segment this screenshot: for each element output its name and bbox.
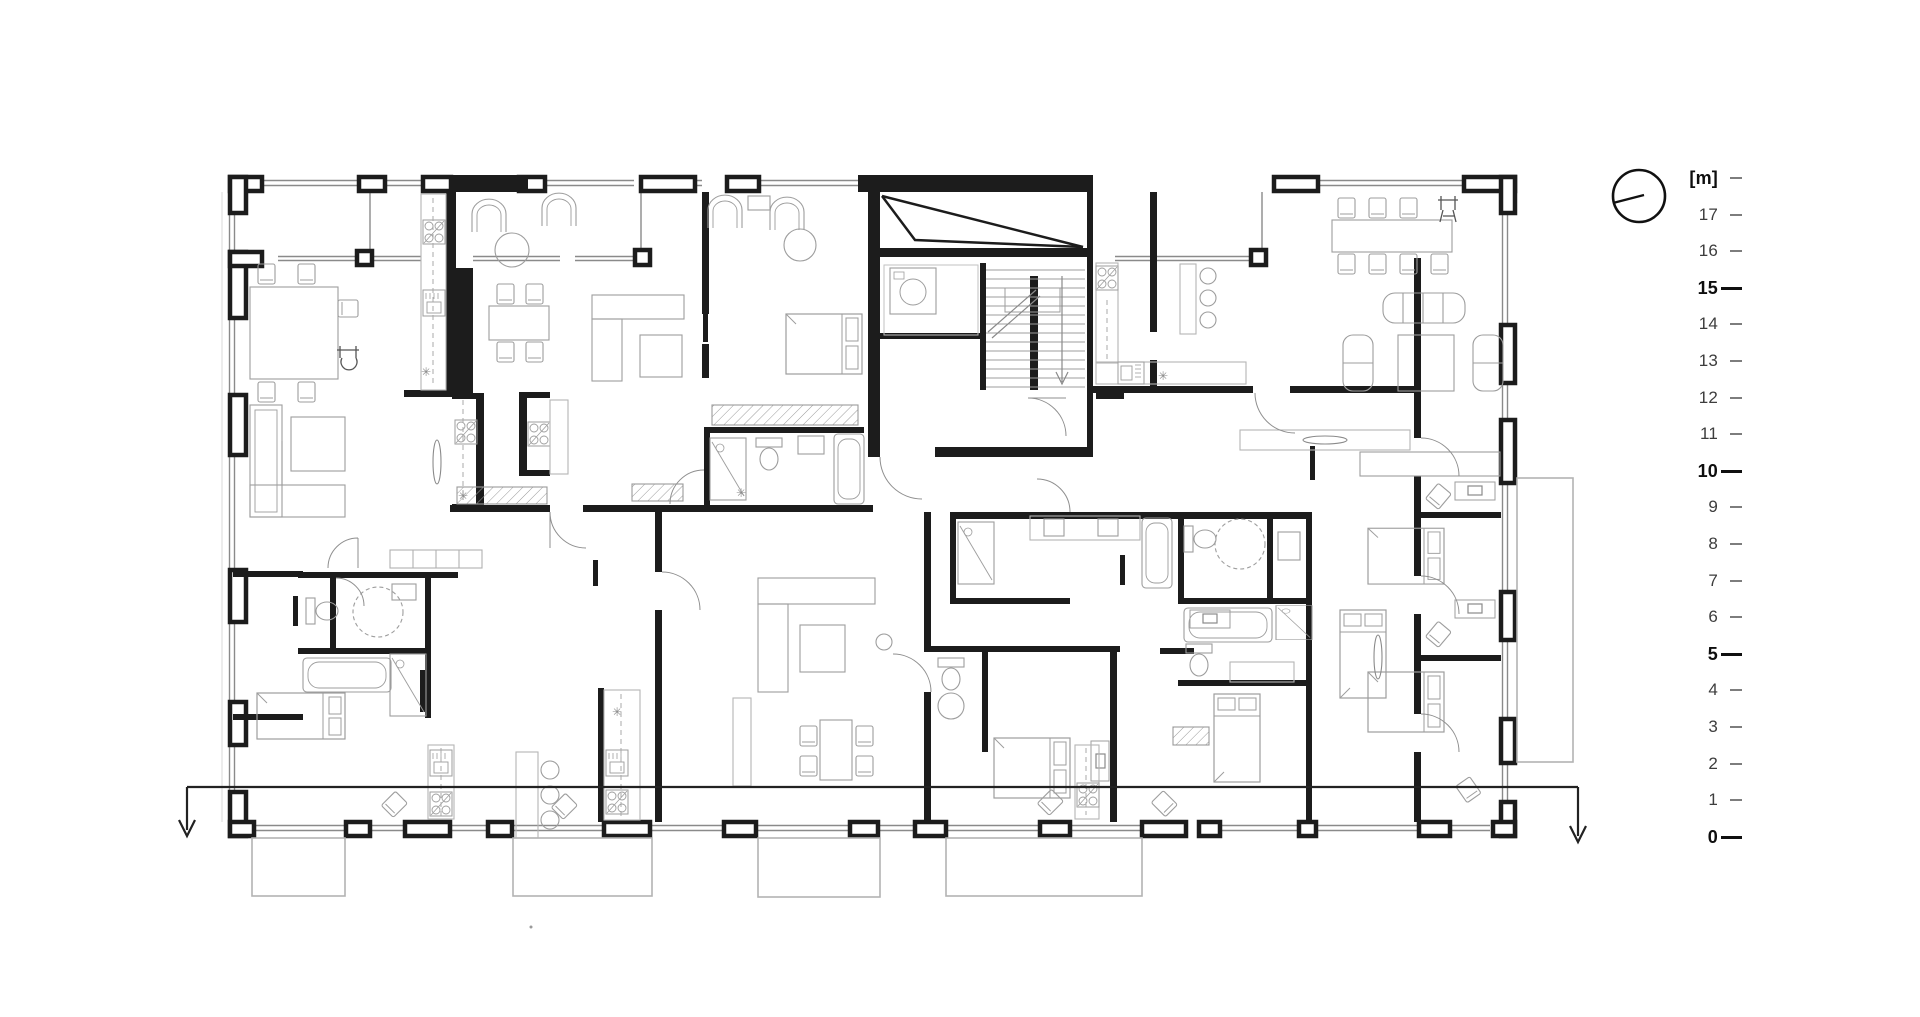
scale-tick-15: 15 <box>1640 275 1742 301</box>
scale-tick-mark-major <box>1721 287 1742 290</box>
scale-tick-2: 2 <box>1640 751 1742 777</box>
plant <box>433 440 441 484</box>
scale-tick-mark <box>1730 616 1742 618</box>
svg-text:✳: ✳ <box>1158 369 1168 383</box>
scale-tick-mark <box>1730 433 1742 435</box>
scale-tick-8: 8 <box>1640 531 1742 557</box>
interior-walls <box>233 192 1501 822</box>
scale-tick-mark <box>1730 799 1742 801</box>
scale-tick-3: 3 <box>1640 714 1742 740</box>
scale-tick-14: 14 <box>1640 311 1742 337</box>
stair-core <box>868 192 1093 457</box>
scale-tick-mark <box>1730 763 1742 765</box>
scale-tick-mark <box>1730 177 1742 179</box>
scale-tick-mark <box>1730 543 1742 545</box>
scale-tick-mark <box>1730 397 1742 399</box>
svg-text:✳: ✳ <box>736 486 746 500</box>
wheelchair-symbol <box>337 346 359 370</box>
scale-tick-mark-major <box>1721 653 1742 656</box>
scale-tick-1: 1 <box>1640 787 1742 813</box>
unit-3-bedroom <box>708 195 862 425</box>
unit-2-sofa <box>592 295 684 381</box>
scale-tick-17: 17 <box>1640 202 1742 228</box>
scale-tick-6: 6 <box>1640 604 1742 630</box>
scale-tick-mark <box>1730 580 1742 582</box>
scale-tick-mark-major <box>1721 836 1742 839</box>
unit-left-lower: ✳ <box>257 584 640 838</box>
scale-tick-5: 5 <box>1640 641 1742 667</box>
door-swings <box>328 393 1459 752</box>
scale-tick-10: 10 <box>1640 458 1742 484</box>
floor-plan-drawing: ✳ ✳ <box>0 0 1920 1017</box>
scale-tick-13: 13 <box>1640 348 1742 374</box>
architectural-floor-plan-sheet: ✳ ✳ <box>0 0 1920 1017</box>
scale-unit-row: [m] <box>1640 165 1742 191</box>
scale-tick-mark <box>1730 726 1742 728</box>
scale-tick-mark <box>1730 689 1742 691</box>
svg-text:✳: ✳ <box>458 489 468 503</box>
scale-tick-7: 7 <box>1640 568 1742 594</box>
scale-tick-mark <box>1730 250 1742 252</box>
scale-tick-0: 0 <box>1640 824 1742 850</box>
unit-2-dining <box>489 284 549 362</box>
right-wing <box>1190 430 1500 803</box>
scale-tick-12: 12 <box>1640 385 1742 411</box>
scale-tick-11: 11 <box>1640 421 1742 447</box>
scale-tick-4: 4 <box>1640 677 1742 703</box>
bottom-kitchenettes <box>381 745 1177 819</box>
scale-unit-label: [m] <box>1640 168 1718 189</box>
scale-tick-mark <box>1730 360 1742 362</box>
svg-text:✳: ✳ <box>612 705 622 719</box>
unit-rightcenter-kitchen: ✳ <box>1096 263 1246 384</box>
scale-tick-9: 9 <box>1640 494 1742 520</box>
unit-topleft-living <box>250 405 345 517</box>
unit-3-bath: ✳ <box>710 434 864 504</box>
scale-tick-mark-major <box>1721 470 1742 473</box>
scale-tick-mark <box>1730 214 1742 216</box>
highchair-symbol <box>1438 196 1458 222</box>
unit-topleft-dining <box>250 264 359 402</box>
unit-topleft-kitchen <box>421 194 446 390</box>
balconies <box>252 478 1573 929</box>
scale-tick-16: 16 <box>1640 238 1742 264</box>
unit-bottom-center <box>733 578 1109 798</box>
scale-tick-mark <box>1730 506 1742 508</box>
scale-tick-mark <box>1730 323 1742 325</box>
svg-text:✳: ✳ <box>421 365 431 379</box>
